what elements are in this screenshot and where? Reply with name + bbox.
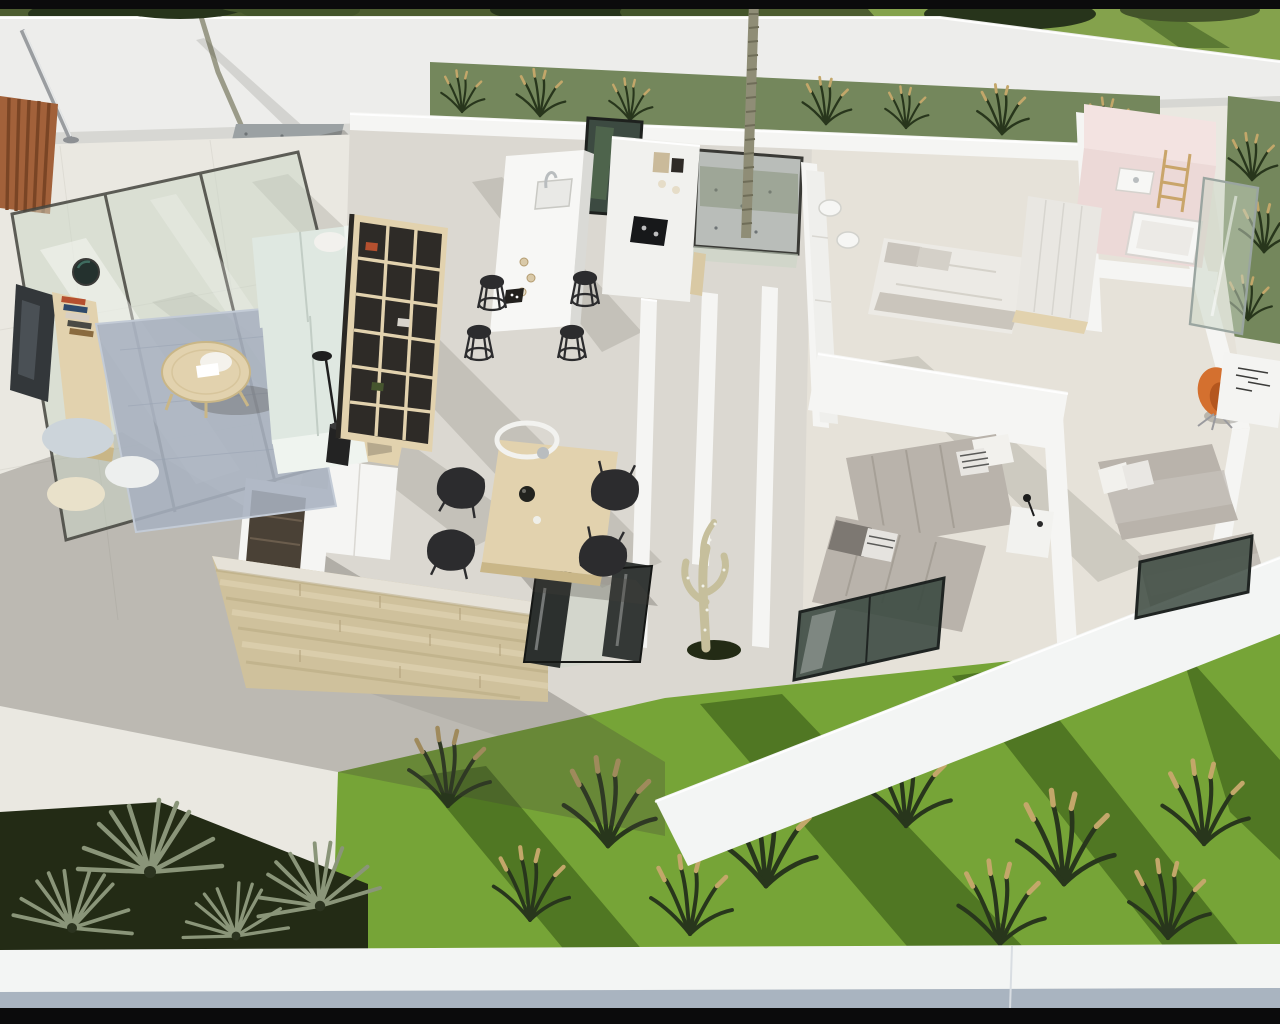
vanity-sink xyxy=(1116,168,1154,194)
front-boundary-wall xyxy=(0,944,1280,1014)
letterbox-bar-bottom xyxy=(0,1008,1280,1024)
corten-slat-screen xyxy=(0,96,58,214)
villa-floorplan-render xyxy=(0,0,1280,1024)
bookshelf xyxy=(338,214,448,452)
letterbox-bar-top xyxy=(0,0,1280,9)
render-canvas xyxy=(0,0,1280,1024)
desk-cube xyxy=(1216,352,1280,428)
island-sink xyxy=(535,179,572,209)
bathtub xyxy=(1126,212,1202,264)
cooktop xyxy=(630,216,668,246)
round-mirror xyxy=(73,259,99,285)
kitchen-back-counter xyxy=(602,136,706,302)
tv-panel xyxy=(10,284,56,402)
